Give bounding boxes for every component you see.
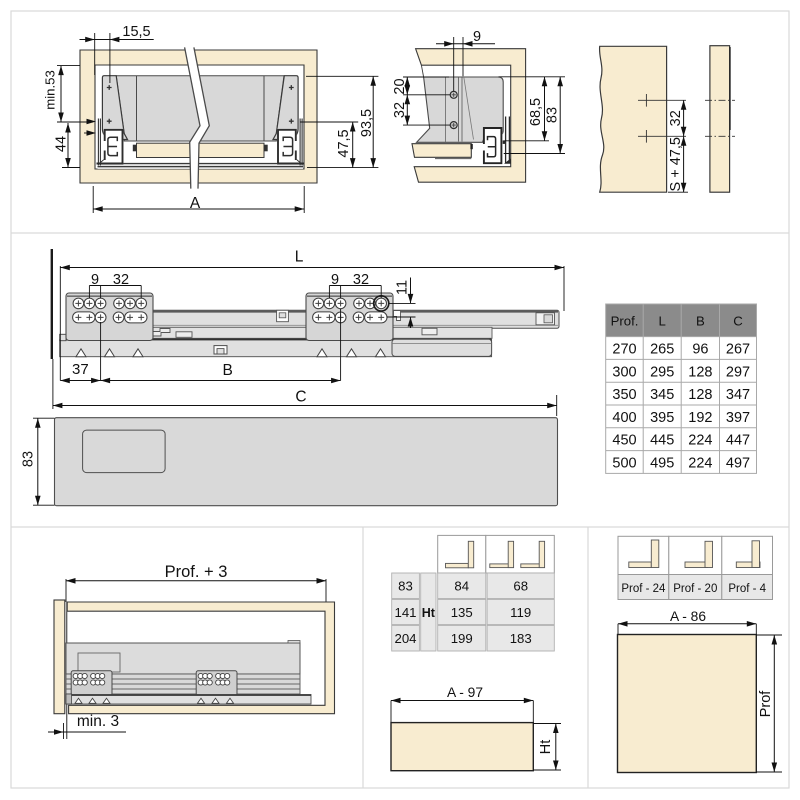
svg-text:119: 119 — [510, 605, 531, 620]
svg-text:Prof - 20: Prof - 20 — [673, 583, 717, 595]
svg-text:199: 199 — [451, 631, 473, 646]
svg-text:32: 32 — [353, 272, 369, 288]
svg-text:128: 128 — [688, 364, 712, 380]
svg-text:93,5: 93,5 — [359, 109, 375, 137]
svg-text:A - 86: A - 86 — [670, 609, 706, 624]
svg-text:min.53: min.53 — [43, 70, 58, 110]
svg-text:224: 224 — [688, 456, 712, 472]
svg-text:395: 395 — [650, 410, 674, 426]
svg-text:68,5: 68,5 — [528, 98, 544, 126]
svg-text:Prof - 4: Prof - 4 — [728, 583, 766, 595]
svg-text:44: 44 — [54, 136, 70, 152]
svg-text:Ht: Ht — [538, 740, 554, 755]
svg-text:450: 450 — [612, 433, 636, 449]
svg-text:84: 84 — [454, 579, 469, 594]
svg-text:47,5: 47,5 — [336, 129, 352, 157]
svg-text:83: 83 — [398, 579, 413, 594]
svg-text:Prof.: Prof. — [611, 314, 639, 329]
svg-text:347: 347 — [726, 387, 750, 403]
svg-text:32: 32 — [668, 110, 684, 126]
svg-text:192: 192 — [688, 410, 712, 426]
svg-text:Prof. + 3: Prof. + 3 — [165, 563, 228, 581]
svg-text:C: C — [733, 314, 743, 329]
svg-text:497: 497 — [726, 456, 750, 472]
svg-text:15,5: 15,5 — [122, 24, 150, 40]
svg-text:495: 495 — [650, 456, 674, 472]
svg-text:265: 265 — [650, 342, 674, 358]
svg-text:297: 297 — [726, 364, 750, 380]
svg-text:300: 300 — [612, 364, 636, 380]
svg-text:400: 400 — [612, 410, 636, 426]
svg-text:Prof: Prof — [758, 690, 774, 718]
svg-text:128: 128 — [688, 387, 712, 403]
svg-text:270: 270 — [612, 342, 636, 358]
svg-text:B: B — [696, 314, 705, 329]
svg-text:141: 141 — [394, 605, 416, 620]
svg-text:min. 3: min. 3 — [77, 713, 119, 730]
svg-text:32: 32 — [113, 272, 129, 288]
svg-text:Prof - 24: Prof - 24 — [621, 583, 666, 595]
svg-text:447: 447 — [726, 433, 750, 449]
svg-text:350: 350 — [612, 387, 636, 403]
svg-text:224: 224 — [688, 433, 712, 449]
svg-text:445: 445 — [650, 433, 674, 449]
svg-text:9: 9 — [473, 29, 481, 45]
svg-text:83: 83 — [21, 451, 37, 467]
svg-text:204: 204 — [394, 631, 416, 646]
svg-text:397: 397 — [726, 410, 750, 426]
svg-text:37: 37 — [72, 361, 89, 378]
svg-text:96: 96 — [692, 342, 708, 358]
svg-text:C: C — [295, 389, 306, 406]
svg-text:183: 183 — [510, 631, 532, 646]
svg-text:L: L — [659, 314, 666, 329]
svg-text:A - 97: A - 97 — [447, 685, 483, 700]
svg-text:B: B — [223, 362, 233, 379]
svg-text:68: 68 — [513, 579, 528, 594]
svg-text:267: 267 — [726, 342, 750, 358]
svg-text:295: 295 — [650, 364, 674, 380]
svg-text:L: L — [295, 249, 304, 266]
svg-text:345: 345 — [650, 387, 674, 403]
svg-text:500: 500 — [612, 456, 636, 472]
svg-text:Ht: Ht — [422, 606, 436, 620]
svg-text:83: 83 — [545, 107, 561, 123]
svg-text:11: 11 — [395, 280, 411, 295]
svg-text:135: 135 — [451, 605, 473, 620]
